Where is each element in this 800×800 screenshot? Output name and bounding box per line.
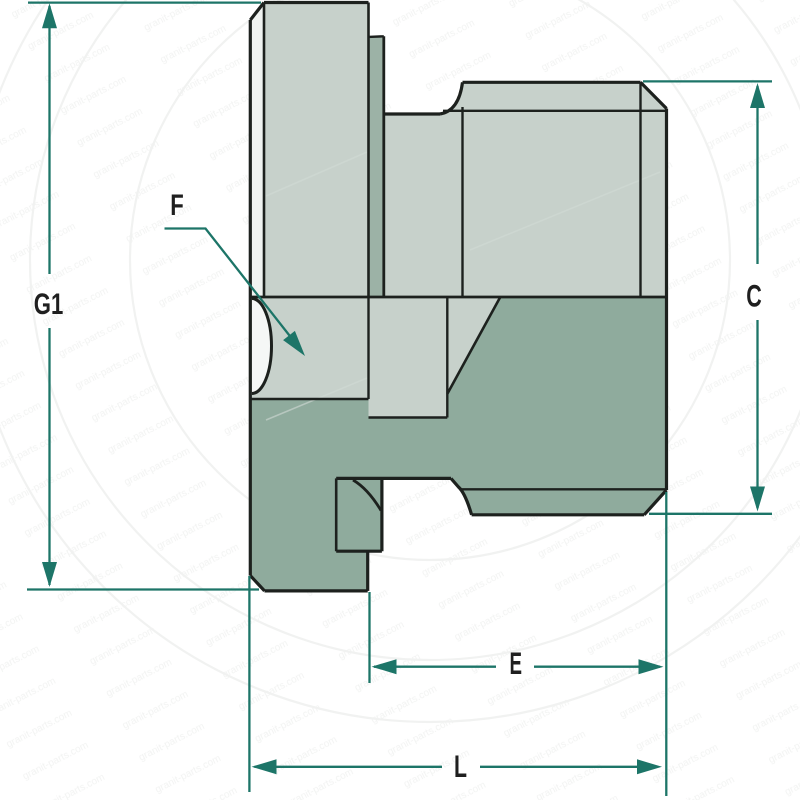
svg-text:F: F [170, 189, 184, 222]
svg-text:L: L [454, 748, 467, 784]
svg-text:E: E [510, 645, 523, 681]
svg-text:C: C [746, 278, 762, 314]
svg-text:G1: G1 [34, 288, 64, 321]
